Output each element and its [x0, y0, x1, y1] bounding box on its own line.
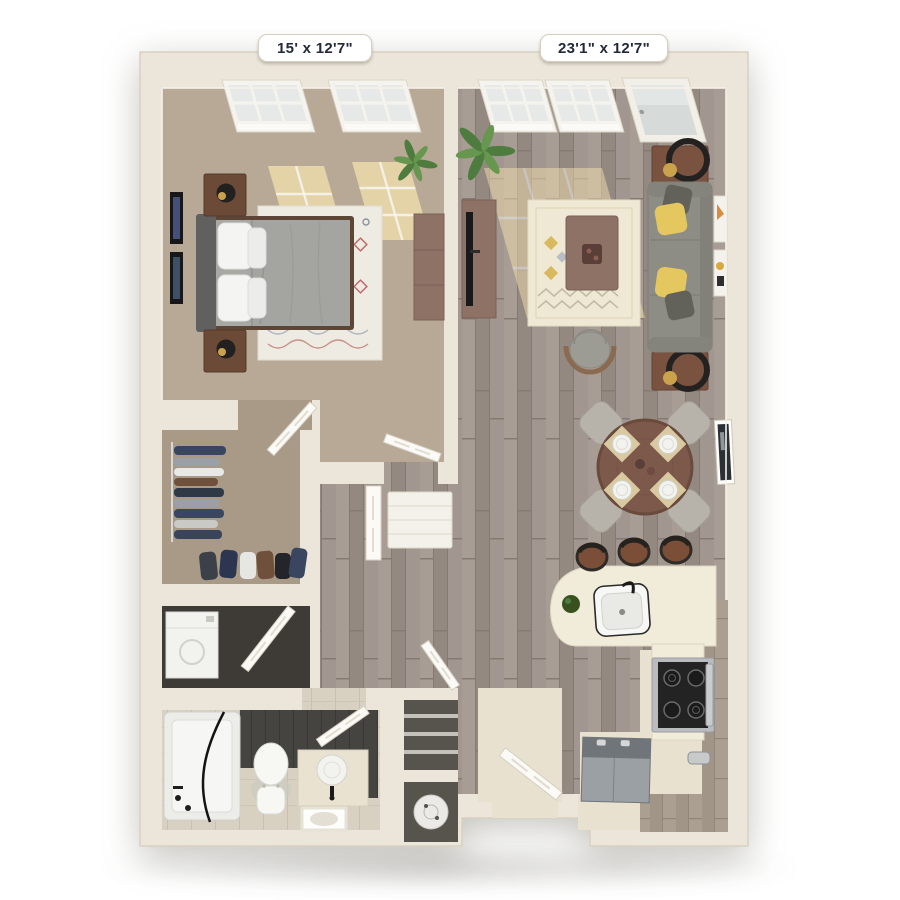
range-stove	[652, 658, 714, 732]
linen-shelves	[404, 700, 458, 770]
end-table-bottom	[652, 351, 708, 390]
living-room-dimension-text: 23'1" x 12'7"	[558, 40, 650, 57]
tv	[466, 212, 473, 306]
nightstand-top	[204, 174, 246, 216]
dining-wall-art	[714, 420, 734, 485]
nightstand-bottom	[204, 330, 246, 372]
floor-plan-drawing	[0, 0, 900, 900]
hall-cabinet	[388, 492, 452, 548]
front-door-threshold	[492, 802, 558, 818]
small-appliance	[688, 752, 710, 764]
bed	[196, 214, 354, 332]
dining-table	[598, 420, 692, 514]
utility-closet	[404, 782, 458, 842]
bathtub	[164, 712, 240, 822]
vanity	[298, 750, 368, 806]
living-room-dimension-label: 23'1" x 12'7"	[540, 34, 668, 62]
counter-plant	[562, 595, 580, 613]
bedroom-dimension-text: 15' x 12'7"	[277, 40, 353, 57]
tv-console	[462, 200, 496, 318]
dresser	[414, 214, 444, 320]
end-table-top	[652, 141, 708, 184]
serving-tray	[582, 244, 602, 264]
bathroom-door-threshold	[302, 688, 366, 710]
hall-door-leaf	[366, 486, 381, 560]
bedroom-dimension-label: 15' x 12'7"	[258, 34, 372, 62]
sofa	[648, 182, 712, 352]
bath-mat-sink-inset	[302, 808, 346, 830]
kitchen-cabinets-bottom	[640, 794, 728, 832]
kitchen-sink	[593, 582, 650, 637]
refrigerator	[581, 737, 651, 803]
vessel-sink	[317, 755, 347, 785]
water-heater	[414, 795, 448, 829]
floor-plan-page: 15' x 12'7" 23'1" x 12'7"	[0, 0, 900, 900]
bedroom-door-threshold	[384, 462, 438, 484]
washer-dryer	[166, 612, 218, 678]
lamp-icon	[217, 340, 236, 359]
lamp-icon	[217, 184, 236, 203]
coffee-table	[566, 216, 618, 290]
